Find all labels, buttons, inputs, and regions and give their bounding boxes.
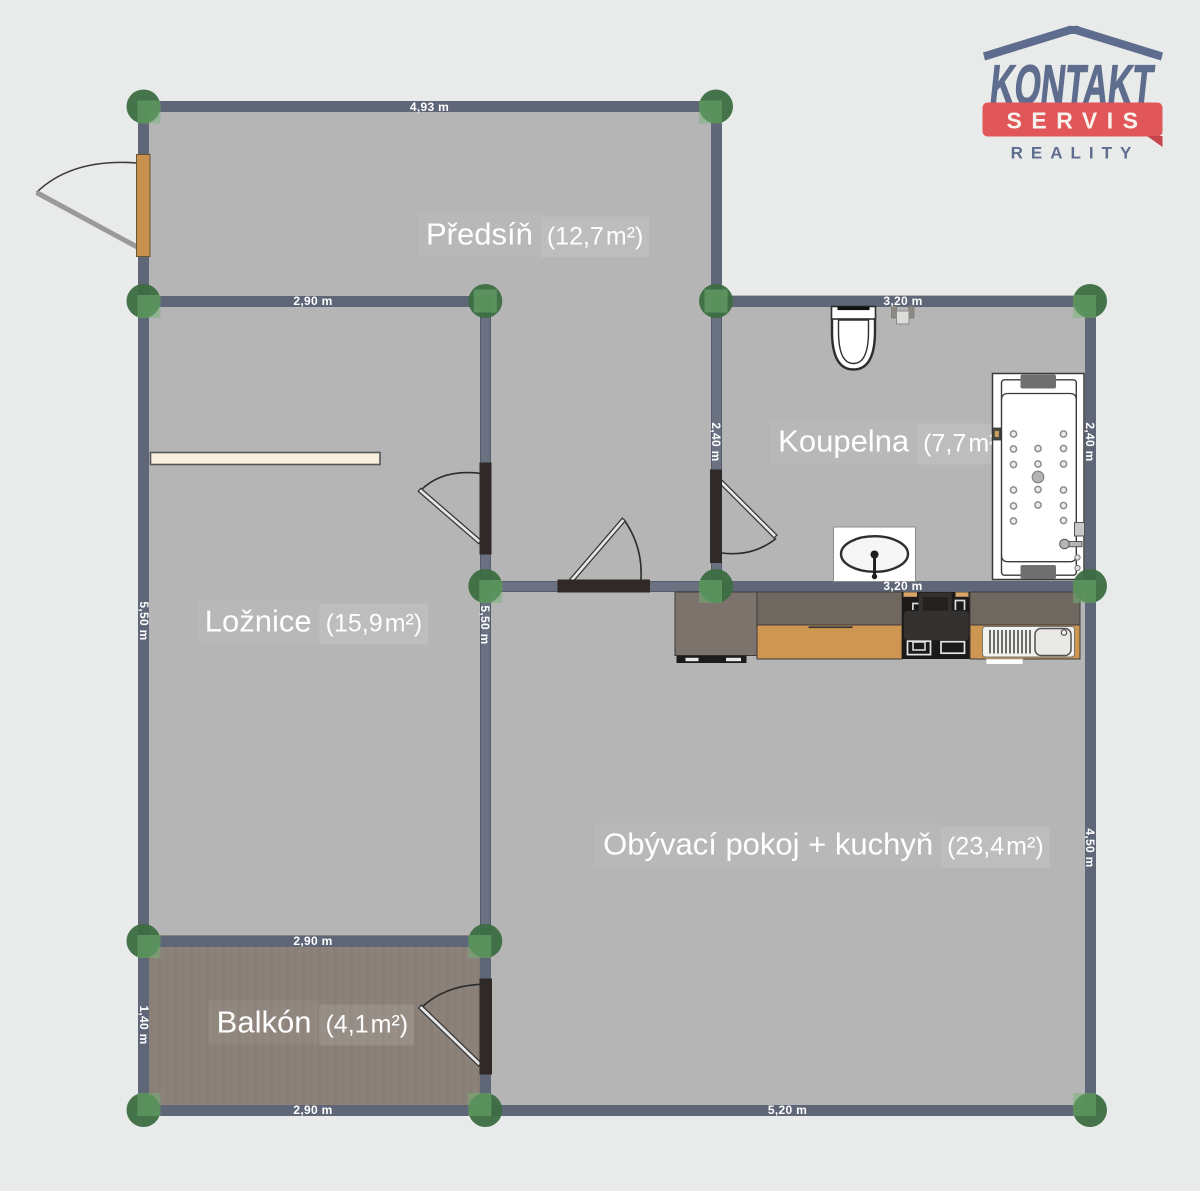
svg-text:SERVIS: SERVIS	[1007, 108, 1148, 134]
svg-text:REALITY: REALITY	[1011, 144, 1140, 163]
